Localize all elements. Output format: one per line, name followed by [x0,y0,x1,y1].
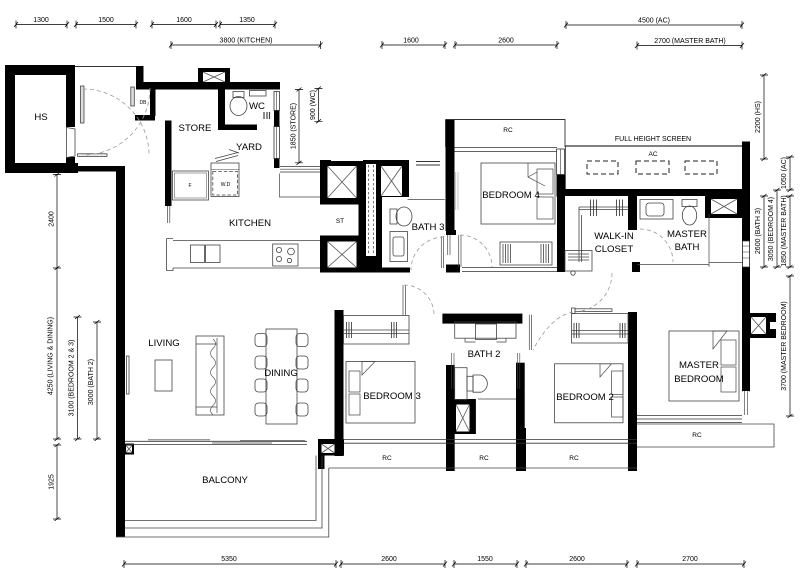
svg-text:YARD: YARD [236,142,262,153]
svg-text:900 (WC): 900 (WC) [310,90,317,120]
svg-text:DINING: DINING [264,368,298,379]
svg-text:MASTER: MASTER [667,229,707,240]
svg-text:FULL HEIGHT SCREEN: FULL HEIGHT SCREEN [615,136,691,143]
svg-text:DB: DB [140,100,148,106]
svg-text:BEDROOM 4: BEDROOM 4 [482,190,540,201]
svg-text:3800 (KITCHEN): 3800 (KITCHEN) [220,38,273,45]
svg-text:W.D: W.D [221,182,231,188]
svg-text:HS: HS [34,112,47,123]
svg-text:ST: ST [336,218,344,225]
svg-text:1600: 1600 [176,17,192,24]
svg-text:1300: 1300 [33,17,49,24]
svg-text:RC: RC [569,455,579,462]
svg-text:4500 (AC): 4500 (AC) [638,18,670,25]
svg-text:3100 (BEDROOM 2 & 3): 3100 (BEDROOM 2 & 3) [69,340,76,417]
svg-text:F: F [188,183,191,189]
svg-text:BATH: BATH [675,242,700,253]
svg-text:1350: 1350 [239,17,255,24]
svg-text:LIVING: LIVING [148,338,179,349]
svg-text:2600: 2600 [381,556,397,563]
svg-text:BEDROOM: BEDROOM [674,374,724,385]
svg-text:WALK-IN: WALK-IN [594,231,634,242]
svg-text:BEDROOM 3: BEDROOM 3 [363,391,421,402]
svg-text:BATH 2: BATH 2 [468,349,501,360]
svg-text:3050 (BEDROOM 4): 3050 (BEDROOM 4) [768,197,775,261]
svg-text:1600: 1600 [403,38,419,45]
svg-text:2600: 2600 [498,38,514,45]
svg-text:RC: RC [503,127,513,134]
svg-text:1050 (AC): 1050 (AC) [781,157,788,189]
svg-text:WC: WC [249,101,265,112]
svg-text:2700: 2700 [682,556,698,563]
svg-text:RC: RC [382,455,392,462]
svg-text:3000 (BATH 2): 3000 (BATH 2) [88,359,95,405]
svg-text:STORE: STORE [179,123,212,134]
svg-text:1500: 1500 [98,17,114,24]
svg-text:1850 (STORE): 1850 (STORE) [291,103,298,149]
svg-text:RC: RC [692,432,702,439]
svg-text:BATH 3: BATH 3 [412,222,445,233]
svg-text:2400: 2400 [49,211,56,227]
svg-text:BALCONY: BALCONY [202,475,248,486]
svg-text:MASTER: MASTER [679,360,719,371]
svg-text:2600: 2600 [569,556,585,563]
svg-text:RC: RC [479,455,489,462]
svg-text:1550: 1550 [477,556,493,563]
svg-text:1925: 1925 [49,474,56,490]
svg-text:1850 (MASTER BATH): 1850 (MASTER BATH) [781,195,788,266]
svg-text:2700 (MASTER BATH): 2700 (MASTER BATH) [654,38,725,45]
svg-text:AC: AC [648,151,657,158]
svg-text:2200 (HS): 2200 (HS) [755,101,762,133]
svg-text:CLOSET: CLOSET [595,244,634,255]
svg-text:2600 (BATH 3): 2600 (BATH 3) [755,208,762,254]
svg-text:3700 (MASTER BEDROOM): 3700 (MASTER BEDROOM) [781,301,788,390]
svg-text:5350: 5350 [221,556,237,563]
svg-text:BEDROOM 2: BEDROOM 2 [556,392,614,403]
svg-text:KITCHEN: KITCHEN [229,218,271,229]
svg-text:4250 (LIVING & DINING): 4250 (LIVING & DINING) [48,317,55,395]
